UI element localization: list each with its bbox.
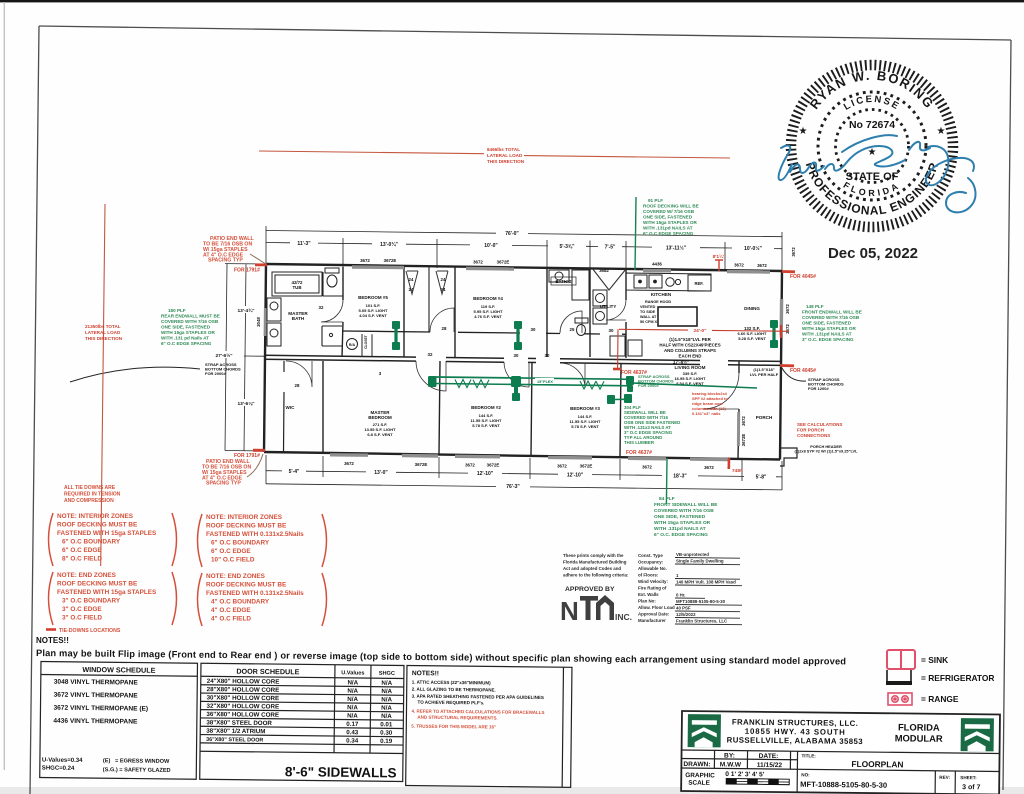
svg-text:6" O.C BOUNDARY: 6" O.C BOUNDARY <box>62 539 121 546</box>
svg-text:4436: 4436 <box>652 262 662 267</box>
svg-text:3672: 3672 <box>465 462 475 467</box>
svg-text:0.19: 0.19 <box>380 738 393 745</box>
svg-text:5.78 S.F. VENT: 5.78 S.F. VENT <box>571 424 599 429</box>
svg-text:UTILITY: UTILITY <box>600 304 617 309</box>
svg-text:NOTE: END ZONES: NOTE: END ZONES <box>206 573 266 580</box>
svg-text:FASTENED WITH 0.131x2.5Nails: FASTENED WITH 0.131x2.5Nails <box>206 531 304 538</box>
svg-text:4" O.C BOUNDARY: 4" O.C BOUNDARY <box>211 599 270 606</box>
svg-text:(S.G.) = SAFETY GLAZED: (S.G.) = SAFETY GLAZED <box>103 767 171 774</box>
svg-text:ROOF DECKING MUST BE: ROOF DECKING MUST BE <box>57 581 138 588</box>
svg-text:24'-0": 24'-0" <box>693 328 706 334</box>
svg-text:5'-4": 5'-4" <box>289 469 300 475</box>
svg-text:4" O.C EDGE: 4" O.C EDGE <box>211 607 251 614</box>
svg-text:RUSSELLVILLE, ALABAMA 35853: RUSSELLVILLE, ALABAMA 35853 <box>727 735 864 746</box>
svg-text:= SINK: = SINK <box>921 655 948 665</box>
svg-text:4.04 S.F. VENT: 4.04 S.F. VENT <box>359 313 387 318</box>
svg-text:EACH END: EACH END <box>679 354 702 359</box>
svg-text:8466lbs TOTAL: 8466lbs TOTAL <box>487 147 520 152</box>
svg-text:NO:: NO: <box>801 772 810 777</box>
svg-text:148 PLF: 148 PLF <box>806 304 824 309</box>
svg-text:11/15/22: 11/15/22 <box>757 762 783 769</box>
svg-text:(E) = EGRESS WINDOW: (E) = EGRESS WINDOW <box>103 758 170 765</box>
svg-text:MFT10888-5105-80-5-30: MFT10888-5105-80-5-30 <box>676 599 726 604</box>
svg-text:5.28 S.F. VENT: 5.28 S.F. VENT <box>738 336 766 341</box>
svg-text:AND COLUMNS STRAPS: AND COLUMNS STRAPS <box>664 348 716 353</box>
svg-text:3672: 3672 <box>785 324 790 334</box>
svg-text:3048 VINYL THERMOPANE: 3048 VINYL THERMOPANE <box>54 679 139 687</box>
svg-text:13'-4¾": 13'-4¾" <box>237 307 254 314</box>
svg-text:★: ★ <box>799 126 808 137</box>
svg-text:10'-0½": 10'-0½" <box>744 245 762 252</box>
svg-text:INC.: INC. <box>615 612 632 622</box>
svg-text:4" O.C FIELD: 4" O.C FIELD <box>211 616 251 623</box>
svg-text:32: 32 <box>428 352 433 357</box>
svg-text:30: 30 <box>609 328 614 333</box>
svg-text:38"X80" STEEL DOOR: 38"X80" STEEL DOOR <box>206 719 272 727</box>
svg-text:BY:: BY: <box>724 752 735 759</box>
svg-text:0.43: 0.43 <box>346 729 359 736</box>
svg-text:36"X80" STEEL DOOR: 36"X80" STEEL DOOR <box>206 737 263 744</box>
svg-text:Allow. Floor Load: Allow. Floor Load <box>638 605 675 610</box>
svg-text:3048: 3048 <box>256 317 261 327</box>
svg-text:N/A: N/A <box>347 688 358 695</box>
svg-text:BEDROOM #3: BEDROOM #3 <box>570 406 600 411</box>
svg-text:5'-3⅝": 5'-3⅝" <box>560 244 576 250</box>
svg-text:3672 VINYL THERMOPANE: 3672 VINYL THERMOPANE <box>54 692 139 700</box>
svg-text:STATE OF: STATE OF <box>846 171 899 183</box>
svg-text:BEDROOM: BEDROOM <box>368 415 392 420</box>
svg-text:WITH .131pd NAILS AT: WITH .131pd NAILS AT <box>654 526 706 532</box>
svg-text:DRAWN:: DRAWN: <box>683 761 710 768</box>
svg-text:50 CFM X: 50 CFM X <box>640 320 658 324</box>
svg-text:APPROVED BY: APPROVED BY <box>565 586 615 593</box>
svg-text:SPACING TYP: SPACING TYP <box>206 481 241 487</box>
svg-text:6" O.C EDGE: 6" O.C EDGE <box>211 548 251 555</box>
svg-text:Fire Rating of: Fire Rating of <box>638 586 667 591</box>
svg-text:3672E: 3672E <box>487 463 500 468</box>
svg-text:FOR 1200#: FOR 1200# <box>808 386 829 391</box>
svg-text:84 PLF: 84 PLF <box>659 496 675 502</box>
svg-text:WITH 15ga STAPLES OR: WITH 15ga STAPLES OR <box>654 520 711 526</box>
svg-text:Approval Date:: Approval Date: <box>638 612 670 617</box>
svg-text:12/5/2022: 12/5/2022 <box>676 612 696 617</box>
svg-text:Manufacturer: Manufacturer <box>638 618 666 623</box>
svg-text:3" O.C BOUNDARY: 3" O.C BOUNDARY <box>62 598 121 605</box>
svg-text:FASTENED WITH 15ga STAPLES: FASTENED WITH 15ga STAPLES <box>57 530 157 537</box>
svg-text:28"X80" HOLLOW CORE: 28"X80" HOLLOW CORE <box>207 686 280 694</box>
svg-text:6" O.C EDGE SPACING: 6" O.C EDGE SPACING <box>643 231 694 236</box>
svg-text:These prints comply with the: These prints comply with the <box>563 553 624 558</box>
svg-text:38"X80" 1/2 ATRIUM: 38"X80" 1/2 ATRIUM <box>206 728 265 736</box>
svg-text:DINING: DINING <box>744 306 760 311</box>
svg-text:12'-10": 12'-10" <box>567 472 584 478</box>
svg-text:N/A: N/A <box>347 713 358 720</box>
svg-text:WITH .131pd NAILS AT: WITH .131pd NAILS AT <box>802 332 852 337</box>
svg-text:3672E: 3672E <box>415 462 428 467</box>
svg-text:FASTENED WITH 15ga STAPLES: FASTENED WITH 15ga STAPLES <box>57 589 157 596</box>
svg-text:N/A: N/A <box>381 696 392 703</box>
svg-text:76'-0": 76'-0" <box>505 231 519 237</box>
svg-text:5. TRUSSES FOR THIS MODEL ARE: 5. TRUSSES FOR THIS MODEL ARE 16" <box>411 724 496 730</box>
svg-text:30: 30 <box>545 353 550 358</box>
svg-text:24: 24 <box>409 287 414 292</box>
svg-text:15"PLEX: 15"PLEX <box>537 380 553 384</box>
svg-text:25: 25 <box>570 327 575 332</box>
svg-text:★: ★ <box>868 147 877 158</box>
svg-text:3672: 3672 <box>757 263 767 268</box>
svg-text:ONE SIDE, FASTENED: ONE SIDE, FASTENED <box>654 514 706 520</box>
svg-text:RANGE HOOD: RANGE HOOD <box>645 300 671 304</box>
svg-text:13'-0¾": 13'-0¾" <box>380 241 398 248</box>
svg-text:13'-11½": 13'-11½" <box>666 244 687 251</box>
svg-text:REAR ENDWALL MUST BE: REAR ENDWALL MUST BE <box>161 314 220 319</box>
svg-text:3672E: 3672E <box>384 258 397 263</box>
svg-text:Ext. Walls: Ext. Walls <box>638 592 659 597</box>
svg-text:748#: 748# <box>732 468 743 474</box>
svg-text:3672: 3672 <box>741 416 746 426</box>
svg-text:NOTES!!: NOTES!! <box>36 636 69 645</box>
svg-text:COVERED W/ 7/16 OSB: COVERED W/ 7/16 OSB <box>643 209 695 214</box>
svg-text:(1)1.5"X18"LVL PER: (1)1.5"X18"LVL PER <box>669 337 711 342</box>
svg-text:FRONT ENDWALL WILL BE: FRONT ENDWALL WILL BE <box>802 310 862 315</box>
svg-text:3672E: 3672E <box>497 260 510 265</box>
svg-text:3672: 3672 <box>734 263 744 268</box>
svg-text:BEDROOM #5: BEDROOM #5 <box>358 295 388 300</box>
svg-text:Wind Velocity:: Wind Velocity: <box>638 579 669 584</box>
svg-text:COVERED WITH 7/16 OSB: COVERED WITH 7/16 OSB <box>161 319 219 324</box>
svg-text:WITH .131pd NAILS AT: WITH .131pd NAILS AT <box>643 226 693 231</box>
svg-text:DOOR SCHEDULE: DOOR SCHEDULE <box>236 667 299 677</box>
svg-text:TUB: TUB <box>292 285 301 290</box>
svg-text:AND COMPRESSION: AND COMPRESSION <box>64 498 114 504</box>
svg-text:WINDOW SCHEDULE: WINDOW SCHEDULE <box>82 665 155 675</box>
svg-text:ROOF DECKING MUST BE: ROOF DECKING MUST BE <box>206 582 287 589</box>
svg-text:24: 24 <box>441 287 446 292</box>
svg-text:N/A: N/A <box>381 688 392 695</box>
svg-text:SHEET:: SHEET: <box>960 775 977 780</box>
svg-text:Const. Type: Const. Type <box>638 553 663 558</box>
svg-text:LVL PER HALF: LVL PER HALF <box>750 372 779 377</box>
svg-text:FOR 1791#: FOR 1791# <box>234 453 260 459</box>
svg-text:of Floors:: of Floors: <box>638 573 659 578</box>
svg-text:VENTED: VENTED <box>640 305 656 309</box>
svg-text:GRAPHIC: GRAPHIC <box>685 772 715 779</box>
svg-text:U.Values: U.Values <box>341 670 364 676</box>
svg-text:0.01: 0.01 <box>380 721 393 728</box>
svg-text:FOR 2000#: FOR 2000# <box>638 383 659 388</box>
svg-text:LATERAL LOAD: LATERAL LOAD <box>487 153 523 158</box>
svg-text:3672: 3672 <box>360 258 370 263</box>
svg-text:0.17: 0.17 <box>346 721 359 728</box>
svg-text:WITH 15ga STAPLES OR: WITH 15ga STAPLES OR <box>161 330 215 335</box>
svg-text:12'-10": 12'-10" <box>477 471 494 477</box>
svg-text:3672: 3672 <box>704 465 714 470</box>
svg-text:3672: 3672 <box>642 464 652 469</box>
svg-text:THIS DIRECTION: THIS DIRECTION <box>85 336 123 341</box>
svg-text:7'-5": 7'-5" <box>605 245 616 251</box>
svg-text:NOTE: INTERIOR ZONES: NOTE: INTERIOR ZONES <box>206 514 283 521</box>
svg-text:6" O.C. EDGE SPACING: 6" O.C. EDGE SPACING <box>654 532 708 538</box>
svg-text:TO SIDE: TO SIDE <box>640 310 656 314</box>
svg-text:Single Family Dwelling: Single Family Dwelling <box>676 559 724 564</box>
svg-text:BATH#2: BATH#2 <box>556 279 573 284</box>
svg-text:Allowable No.: Allowable No. <box>638 566 667 571</box>
svg-text:WALL AT: WALL AT <box>640 315 657 319</box>
svg-text:6" O.C BOUNDARY: 6" O.C BOUNDARY <box>211 540 270 547</box>
svg-text:13'-0": 13'-0" <box>374 470 388 476</box>
svg-text:3672: 3672 <box>791 247 796 257</box>
svg-text:76'-3": 76'-3" <box>506 484 520 490</box>
svg-text:5'-8": 5'-8" <box>756 475 767 481</box>
svg-text:18'-3": 18'-3" <box>673 474 687 480</box>
svg-text:REF.: REF. <box>694 281 703 286</box>
svg-text:91 PLF: 91 PLF <box>648 198 663 203</box>
svg-text:N/A: N/A <box>347 696 358 703</box>
svg-text:(2)2x8 SYP #2 W/ (1)1.5"x9.25": (2)2x8 SYP #2 W/ (1)1.5"x9.25"LVL <box>794 449 858 454</box>
svg-text:COVERED WITH 7/16 OSB: COVERED WITH 7/16 OSB <box>802 315 860 320</box>
svg-text:1. ATTIC ACCESS (22"x36"MINIMU: 1. ATTIC ACCESS (22"x36"MINIMUM) <box>412 680 491 686</box>
svg-text:M.W.W: M.W.W <box>720 761 742 768</box>
svg-text:NOTE: END ZONES: NOTE: END ZONES <box>57 572 117 579</box>
svg-text:NOTES!!: NOTES!! <box>412 670 439 677</box>
svg-text:40 PSF: 40 PSF <box>676 606 691 611</box>
svg-text:30"X80" HOLLOW CORE: 30"X80" HOLLOW CORE <box>207 694 280 702</box>
svg-text:3672: 3672 <box>785 304 790 314</box>
svg-text:3682: 3682 <box>599 268 609 273</box>
svg-text:MODULAR: MODULAR <box>895 732 943 744</box>
svg-text:0.34: 0.34 <box>346 737 359 744</box>
svg-text:SPACING TYP: SPACING TYP <box>208 258 243 264</box>
svg-text:REV:: REV: <box>939 775 950 780</box>
svg-text:Florida Manufactured Building: Florida Manufactured Building <box>563 560 627 565</box>
svg-text:N/A: N/A <box>347 704 358 711</box>
svg-text:★: ★ <box>937 126 946 137</box>
svg-text:6" O.C EDGE: 6" O.C EDGE <box>62 547 102 554</box>
svg-text:ROOF DECKING MUST BE: ROOF DECKING MUST BE <box>57 522 138 529</box>
svg-text:0.131"x3" nails: 0.131"x3" nails <box>692 411 721 416</box>
svg-text:KITCHEN: KITCHEN <box>651 292 672 297</box>
svg-text:N: N <box>560 596 579 626</box>
svg-text:FRONT SIDEWALL WILL BE: FRONT SIDEWALL WILL BE <box>654 502 718 508</box>
svg-text:28: 28 <box>442 326 447 331</box>
svg-text:FLOORPLAN: FLOORPLAN <box>851 759 903 770</box>
svg-text:3672E: 3672E <box>580 464 593 469</box>
svg-text:BEDROOM #4: BEDROOM #4 <box>473 296 503 301</box>
svg-text:FOR 2000#: FOR 2000# <box>205 371 226 376</box>
svg-text:3672E: 3672E <box>741 434 746 447</box>
svg-text:27'-6½": 27'-6½" <box>215 352 232 359</box>
svg-text:WITH 15ga STAPLES OR: WITH 15ga STAPLES OR <box>802 326 856 331</box>
svg-text:U-Values=0.34: U-Values=0.34 <box>42 758 83 764</box>
svg-text:30: 30 <box>531 327 536 332</box>
svg-text:11'-3": 11'-3" <box>297 241 311 247</box>
svg-text:= REFRIGERATOR: = REFRIGERATOR <box>921 673 994 683</box>
svg-text:8'1¼": 8'1¼" <box>713 253 726 260</box>
svg-text:THIS LUMBER: THIS LUMBER <box>624 440 655 445</box>
svg-text:FASTENED WITH 0.131x2.5Nails: FASTENED WITH 0.131x2.5Nails <box>206 590 304 597</box>
svg-text:Franklin Structures, LLC: Franklin Structures, LLC <box>676 619 728 624</box>
svg-text:COVERED WITH 7/16 OSB: COVERED WITH 7/16 OSB <box>654 508 714 514</box>
svg-text:HALF WITH CS22X49'PIECES: HALF WITH CS22X49'PIECES <box>659 343 720 348</box>
svg-text:Plan No:: Plan No: <box>638 599 656 604</box>
svg-text:SEE CALCULATIONS: SEE CALCULATIONS <box>797 422 842 427</box>
svg-text:3" O.C FIELD: 3" O.C FIELD <box>62 615 102 622</box>
svg-text:3672: 3672 <box>557 463 567 468</box>
svg-text:VB-unprotected: VB-unprotected <box>676 552 709 557</box>
svg-text:N/A: N/A <box>381 680 392 687</box>
svg-text:BEDROOM #2: BEDROOM #2 <box>471 405 501 410</box>
svg-text:3" O.C. EDGE SPACING: 3" O.C. EDGE SPACING <box>802 337 854 342</box>
svg-text:Occupancy:: Occupancy: <box>638 560 664 565</box>
svg-text:LIVING ROOM: LIVING ROOM <box>675 365 706 370</box>
svg-text:30: 30 <box>514 353 519 358</box>
svg-text:AND STRUCTURAL REQUIREMENTS.: AND STRUCTURAL REQUIREMENTS. <box>417 715 497 721</box>
svg-text:32: 32 <box>319 305 324 310</box>
svg-text:TITLE:: TITLE: <box>801 753 816 758</box>
svg-text:SCALE: SCALE <box>688 780 710 787</box>
svg-text:TO ACHIEVE REQUIRED PLF's.: TO ACHIEVE REQUIRED PLF's. <box>418 700 485 706</box>
svg-text:FOR PORCH: FOR PORCH <box>797 428 824 433</box>
svg-text:2. ALL GLAZING TO BE THERMOPAN: 2. ALL GLAZING TO BE THERMOPANE. <box>412 687 496 693</box>
svg-text:8'-6" SIDEWALLS: 8'-6" SIDEWALLS <box>285 764 397 780</box>
svg-text:TIE-DOWNS LOCATIONS: TIE-DOWNS LOCATIONS <box>59 628 121 634</box>
svg-text:6" O.C EDGE SPACING: 6" O.C EDGE SPACING <box>161 341 212 346</box>
svg-text:WIC: WIC <box>286 405 296 410</box>
svg-text:3 of 7: 3 of 7 <box>962 784 980 791</box>
svg-text:CLOSET: CLOSET <box>364 334 368 349</box>
svg-text:6.8 S.F. VENT: 6.8 S.F. VENT <box>367 432 393 437</box>
svg-text:28: 28 <box>295 383 300 388</box>
svg-text:BATH: BATH <box>292 316 305 321</box>
svg-text:5.78 S.F. VENT: 5.78 S.F. VENT <box>472 423 500 428</box>
svg-text:FOR 4637#: FOR 4637# <box>621 370 647 376</box>
svg-text:PORCH: PORCH <box>756 415 773 420</box>
svg-text:32"X80" HOLLOW CORE: 32"X80" HOLLOW CORE <box>206 703 279 711</box>
svg-text:ROOF DECKING WILL BE: ROOF DECKING WILL BE <box>643 204 699 209</box>
svg-text:8" O.C FIELD: 8" O.C FIELD <box>62 556 102 563</box>
svg-text:FOR 1791#: FOR 1791# <box>234 268 260 274</box>
svg-text:Dec 05, 2022: Dec 05, 2022 <box>828 245 918 262</box>
svg-text:FOR 4045#: FOR 4045# <box>790 274 816 280</box>
svg-text:3672: 3672 <box>344 461 354 466</box>
svg-text:ONE SIDE, FASTENED: ONE SIDE, FASTENED <box>802 321 852 326</box>
svg-text:Act and adopted Codes and: Act and adopted Codes and <box>563 566 621 571</box>
svg-text:0 Hr.: 0 Hr. <box>676 593 686 598</box>
svg-text:LATERAL LOAD: LATERAL LOAD <box>85 330 121 335</box>
svg-text:CONNECTIONS: CONNECTIONS <box>797 433 830 438</box>
svg-text:3" O.C EDGE: 3" O.C EDGE <box>62 606 102 613</box>
svg-text:NOTE: INTERIOR ZONES: NOTE: INTERIOR ZONES <box>57 513 134 520</box>
svg-text:21350lbs TOTAL: 21350lbs TOTAL <box>85 324 121 329</box>
svg-text:13'-6⅛": 13'-6⅛" <box>237 401 254 407</box>
svg-text:MFT-10888-5105-80-5-30: MFT-10888-5105-80-5-30 <box>800 780 887 790</box>
svg-text:SHGC: SHGC <box>379 671 395 677</box>
svg-text:SHGC=0.24: SHGC=0.24 <box>42 766 75 772</box>
svg-text:10'-0": 10'-0" <box>484 243 498 249</box>
svg-text:WITH 15ga STAPLES OR: WITH 15ga STAPLES OR <box>643 220 697 225</box>
svg-text:= RANGE: = RANGE <box>921 694 959 704</box>
svg-text:ONE SIDE, FASTENED: ONE SIDE, FASTENED <box>161 325 211 330</box>
svg-text:24: 24 <box>409 277 414 282</box>
svg-text:R/A: R/A <box>349 343 356 347</box>
svg-text:adhere to the following criter: adhere to the following criteria: <box>563 573 629 578</box>
svg-text:THIS DIRECTION: THIS DIRECTION <box>487 159 525 164</box>
svg-text:0.30: 0.30 <box>380 730 393 737</box>
svg-text:WITH .131 pd Nails AT: WITH .131 pd Nails AT <box>161 336 209 341</box>
svg-text:N/A: N/A <box>381 713 392 720</box>
svg-text:4436 VINYL THERMOPANE: 4436 VINYL THERMOPANE <box>53 718 138 726</box>
svg-text:FLORIDA: FLORIDA <box>898 721 940 732</box>
svg-text:No 72674: No 72674 <box>849 119 895 131</box>
svg-text:ONE SIDE, FASTENED: ONE SIDE, FASTENED <box>643 215 693 220</box>
svg-text:REQUIRED IN TENSION: REQUIRED IN TENSION <box>64 492 121 498</box>
svg-text:N/A: N/A <box>347 679 358 686</box>
svg-text:24"X80" HOLLOW CORE: 24"X80" HOLLOW CORE <box>207 678 280 686</box>
svg-text:ALL TIE DOWNS ARE: ALL TIE DOWNS ARE <box>64 485 116 491</box>
svg-text:10" O.C FIELD: 10" O.C FIELD <box>211 557 255 564</box>
svg-text:FOR 4637#: FOR 4637# <box>626 450 652 456</box>
svg-text:ROOF DECKING MUST BE: ROOF DECKING MUST BE <box>206 523 287 530</box>
svg-text:4.76 S.F. VENT: 4.76 S.F. VENT <box>474 314 502 319</box>
svg-text:FOR 4045#: FOR 4045# <box>790 368 816 374</box>
svg-text:180 PLF: 180 PLF <box>168 308 186 313</box>
svg-text:17'-6½": 17'-6½" <box>673 359 689 365</box>
svg-text:3672: 3672 <box>473 260 483 265</box>
svg-text:DATE:: DATE: <box>759 753 779 760</box>
svg-text:36"X80" HOLLOW CORE: 36"X80" HOLLOW CORE <box>206 711 279 719</box>
svg-text:3672 VINYL THERMOPANE (E): 3672 VINYL THERMOPANE (E) <box>53 705 148 713</box>
svg-text:24: 24 <box>441 277 446 282</box>
svg-text:140 MPH Vult. 108 MPH Vasd: 140 MPH Vult. 108 MPH Vasd <box>676 580 736 585</box>
svg-text:N/A: N/A <box>381 705 392 712</box>
svg-text:0 1' 2' 3' 4' 5': 0 1' 2' 3' 4' 5' <box>725 771 765 778</box>
